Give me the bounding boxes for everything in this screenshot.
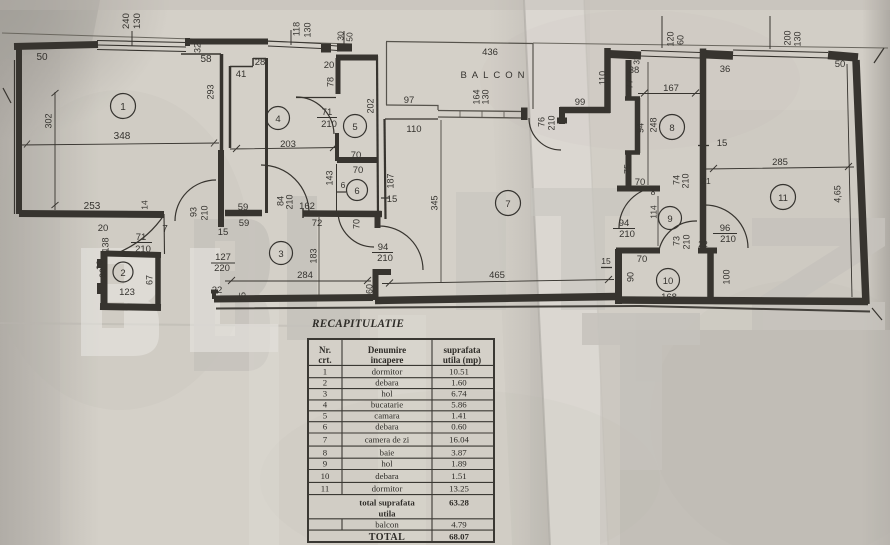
svg-text:210: 210 [546, 115, 556, 130]
svg-text:253: 253 [84, 201, 101, 212]
svg-text:20: 20 [98, 223, 109, 234]
svg-text:130: 130 [132, 13, 143, 29]
svg-text:72: 72 [312, 218, 323, 229]
svg-text:120: 120 [665, 31, 675, 46]
svg-text:130: 130 [302, 22, 312, 37]
svg-text:59: 59 [238, 202, 249, 213]
svg-text:suprafata: suprafata [443, 345, 481, 355]
svg-text:7: 7 [162, 224, 168, 235]
svg-text:10: 10 [663, 276, 674, 287]
svg-text:TOTAL: TOTAL [369, 532, 406, 543]
svg-text:1.89: 1.89 [451, 459, 467, 469]
svg-text:99: 99 [575, 97, 586, 108]
svg-text:210: 210 [135, 244, 151, 255]
svg-text:8: 8 [323, 448, 328, 458]
svg-text:143: 143 [324, 170, 334, 185]
svg-text:30: 30 [97, 268, 107, 278]
svg-text:1.41: 1.41 [451, 411, 466, 421]
svg-text:11: 11 [778, 193, 788, 204]
svg-text:50: 50 [835, 59, 846, 70]
svg-text:bucatarie: bucatarie [371, 400, 403, 410]
svg-text:59: 59 [239, 218, 250, 229]
svg-text:202: 202 [365, 98, 375, 113]
svg-text:114: 114 [648, 205, 658, 219]
svg-text:70: 70 [351, 150, 362, 161]
svg-text:50: 50 [344, 32, 354, 42]
svg-text:7: 7 [505, 199, 510, 210]
svg-text:71: 71 [136, 232, 147, 243]
svg-text:15: 15 [387, 194, 398, 205]
svg-text:187: 187 [385, 173, 395, 188]
svg-text:210: 210 [681, 234, 691, 249]
svg-text:camara: camara [374, 411, 399, 421]
svg-text:14: 14 [139, 200, 149, 210]
svg-text:210: 210 [619, 229, 635, 240]
svg-text:210: 210 [377, 253, 393, 264]
svg-text:3: 3 [323, 389, 328, 399]
svg-text:110: 110 [406, 124, 421, 135]
svg-text:8: 8 [651, 187, 656, 197]
svg-text:hol: hol [381, 459, 393, 469]
svg-text:68.07: 68.07 [449, 532, 469, 542]
svg-text:15: 15 [218, 227, 229, 238]
svg-text:94: 94 [619, 218, 630, 229]
svg-text:32: 32 [192, 43, 202, 53]
svg-text:76: 76 [536, 117, 546, 127]
svg-text:70: 70 [637, 254, 648, 265]
svg-text:168: 168 [661, 292, 677, 303]
svg-text:70: 70 [351, 219, 361, 229]
svg-text:210: 210 [284, 194, 294, 209]
svg-text:utila (mp): utila (mp) [443, 355, 481, 365]
svg-text:210: 210 [720, 234, 736, 245]
svg-text:73: 73 [671, 236, 681, 246]
svg-text:2: 2 [323, 378, 327, 388]
svg-text:123: 123 [119, 287, 135, 298]
svg-text:94: 94 [378, 242, 389, 253]
svg-text:incapere: incapere [371, 355, 404, 365]
svg-text:130: 130 [480, 89, 490, 104]
svg-text:3: 3 [278, 249, 283, 260]
svg-text:345: 345 [429, 195, 439, 210]
svg-text:293: 293 [205, 84, 215, 99]
svg-text:utila: utila [378, 509, 396, 519]
svg-text:465: 465 [489, 270, 505, 281]
svg-text:16.04: 16.04 [449, 435, 469, 445]
svg-text:183: 183 [308, 248, 318, 263]
svg-text:436: 436 [482, 47, 498, 58]
svg-text:0.60: 0.60 [451, 422, 467, 432]
svg-text:4: 4 [323, 400, 328, 410]
svg-text:debara: debara [375, 378, 399, 388]
svg-text:200: 200 [782, 30, 792, 45]
svg-text:dormitor: dormitor [372, 484, 403, 494]
svg-text:58: 58 [200, 54, 212, 65]
svg-text:203: 203 [280, 139, 296, 150]
svg-text:167: 167 [663, 83, 679, 94]
svg-text:5: 5 [323, 411, 328, 421]
svg-text:110: 110 [597, 71, 607, 85]
svg-text:1.60: 1.60 [451, 378, 467, 388]
svg-text:90: 90 [625, 272, 635, 282]
svg-text:1: 1 [120, 102, 126, 113]
svg-text:debara: debara [375, 471, 399, 481]
svg-text:8: 8 [669, 123, 674, 134]
svg-text:63.28: 63.28 [449, 498, 469, 508]
svg-text:5.86: 5.86 [451, 400, 467, 410]
svg-text:97: 97 [404, 95, 415, 106]
svg-text:6.74: 6.74 [451, 389, 467, 399]
svg-text:2: 2 [120, 268, 125, 279]
svg-text:210: 210 [199, 205, 209, 220]
svg-text:21: 21 [701, 176, 711, 186]
svg-text:248: 248 [648, 117, 658, 132]
svg-text:75: 75 [622, 164, 632, 174]
svg-text:9: 9 [667, 214, 672, 225]
svg-text:60: 60 [675, 35, 685, 45]
svg-text:hol: hol [381, 389, 393, 399]
svg-text:RECAPITULATIE: RECAPITULATIE [311, 318, 404, 330]
svg-text:1.51: 1.51 [451, 471, 466, 481]
svg-text:60: 60 [364, 284, 374, 294]
svg-text:284: 284 [297, 270, 313, 281]
svg-text:6: 6 [341, 180, 346, 190]
svg-text:118: 118 [291, 22, 301, 36]
svg-text:285: 285 [772, 157, 788, 168]
svg-text:130: 130 [792, 31, 802, 46]
svg-text:36: 36 [720, 64, 731, 75]
svg-text:94: 94 [635, 123, 645, 133]
svg-text:10.51: 10.51 [449, 367, 469, 377]
svg-text:67: 67 [144, 275, 154, 285]
svg-text:240: 240 [121, 13, 132, 29]
svg-text:balcon: balcon [375, 520, 399, 530]
svg-text:4: 4 [275, 114, 280, 125]
svg-text:22: 22 [212, 285, 223, 296]
svg-text:6: 6 [323, 422, 328, 432]
svg-text:15: 15 [717, 138, 728, 149]
svg-text:28: 28 [255, 57, 266, 68]
svg-text:Nr.: Nr. [319, 345, 331, 355]
svg-text:70: 70 [353, 165, 364, 176]
svg-text:15: 15 [601, 256, 611, 266]
svg-text:11: 11 [321, 484, 329, 494]
svg-text:20: 20 [324, 60, 335, 71]
svg-text:7: 7 [323, 435, 328, 445]
svg-text:15: 15 [237, 292, 247, 302]
svg-text:302: 302 [43, 113, 53, 128]
svg-text:138: 138 [100, 237, 110, 252]
svg-text:71: 71 [322, 107, 333, 118]
svg-text:210: 210 [321, 119, 337, 130]
svg-text:210: 210 [680, 173, 690, 188]
svg-text:96: 96 [720, 223, 731, 234]
svg-text:dormitor: dormitor [372, 367, 403, 377]
svg-text:162: 162 [299, 201, 315, 212]
svg-text:127: 127 [215, 252, 231, 263]
svg-text:4,65: 4,65 [832, 185, 842, 203]
svg-text:13.25: 13.25 [449, 484, 469, 494]
svg-text:50: 50 [36, 52, 48, 63]
svg-text:total suprafata: total suprafata [359, 498, 415, 508]
svg-text:70: 70 [635, 177, 646, 188]
svg-text:41: 41 [236, 69, 247, 80]
svg-text:78: 78 [325, 77, 335, 87]
svg-text:6: 6 [354, 186, 359, 197]
svg-text:crt.: crt. [318, 355, 331, 365]
svg-text:220: 220 [214, 263, 230, 274]
svg-text:1: 1 [323, 367, 327, 377]
svg-text:32: 32 [631, 55, 641, 65]
svg-text:baie: baie [380, 448, 395, 458]
svg-text:3.87: 3.87 [451, 448, 467, 458]
svg-text:camera de zi: camera de zi [365, 435, 410, 445]
svg-text:100: 100 [721, 269, 731, 284]
svg-text:debara: debara [375, 422, 399, 432]
svg-text:348: 348 [114, 131, 131, 142]
svg-text:93: 93 [188, 207, 198, 217]
svg-text:10: 10 [321, 471, 330, 481]
svg-text:38: 38 [629, 65, 640, 76]
svg-text:BALCON: BALCON [460, 70, 529, 81]
svg-text:77: 77 [624, 79, 634, 89]
svg-text:4.79: 4.79 [451, 520, 467, 530]
svg-text:5: 5 [352, 122, 357, 133]
svg-text:9: 9 [323, 459, 328, 469]
svg-text:Denumire: Denumire [368, 345, 406, 355]
